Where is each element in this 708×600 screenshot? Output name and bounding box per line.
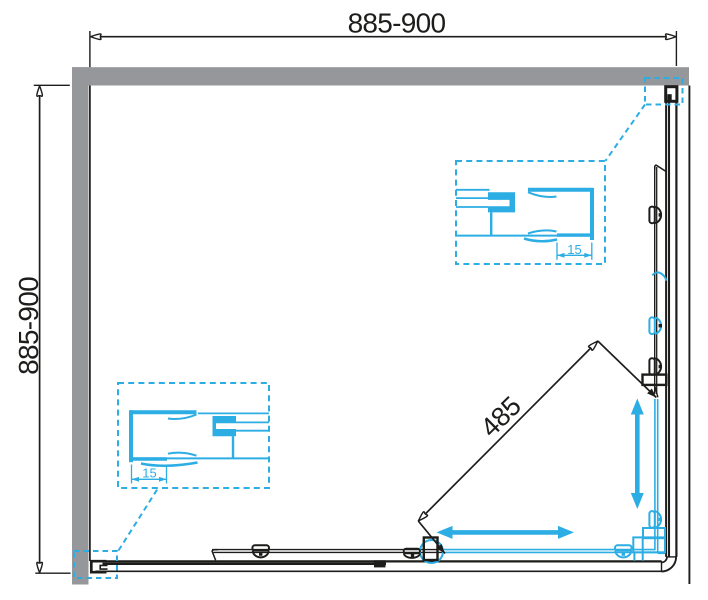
svg-text:15: 15 [567,242,581,257]
svg-text:885-900: 885-900 [13,277,44,375]
svg-text:885-900: 885-900 [348,7,446,38]
svg-text:15: 15 [142,466,156,481]
